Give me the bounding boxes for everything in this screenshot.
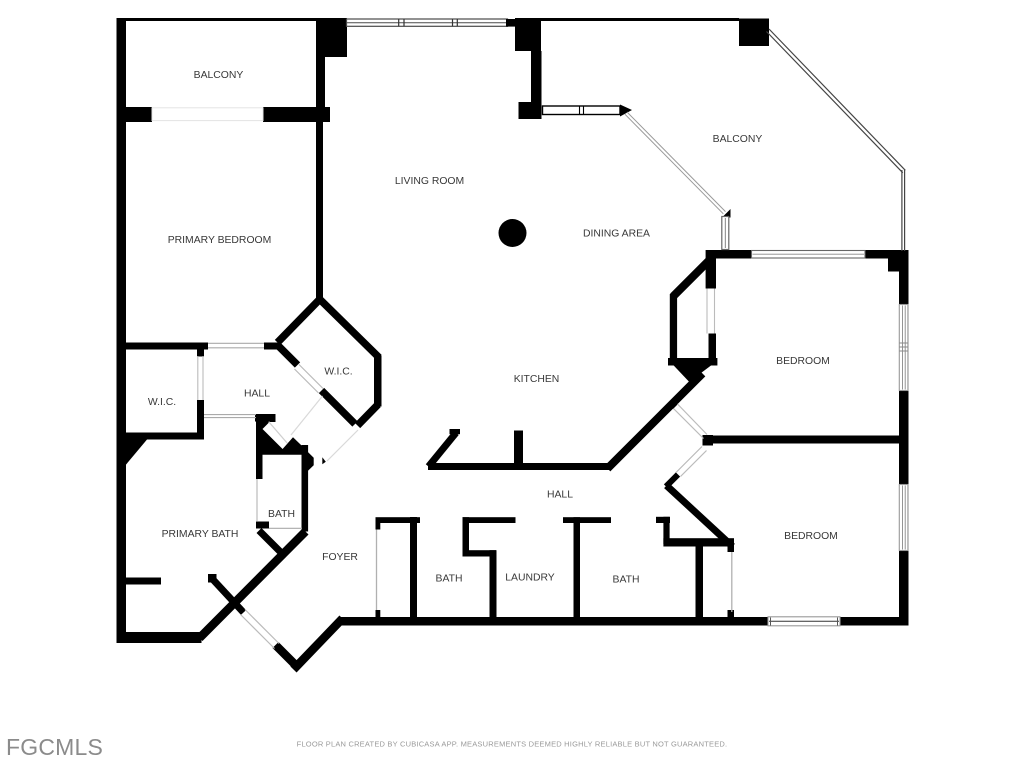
svg-text:LIVING ROOM: LIVING ROOM — [395, 176, 464, 187]
svg-text:W.I.C.: W.I.C. — [324, 367, 352, 378]
svg-text:BATH: BATH — [613, 575, 640, 586]
svg-text:BALCONY: BALCONY — [713, 134, 763, 145]
svg-text:PRIMARY BEDROOM: PRIMARY BEDROOM — [168, 235, 272, 246]
svg-text:FOYER: FOYER — [322, 552, 358, 563]
svg-text:BALCONY: BALCONY — [194, 70, 244, 81]
svg-text:W.I.C.: W.I.C. — [148, 397, 176, 408]
svg-text:BEDROOM: BEDROOM — [784, 531, 838, 542]
svg-text:BEDROOM: BEDROOM — [776, 356, 830, 367]
svg-text:DINING AREA: DINING AREA — [583, 229, 650, 240]
svg-text:LAUNDRY: LAUNDRY — [505, 573, 555, 584]
svg-text:PRIMARY BATH: PRIMARY BATH — [162, 529, 239, 540]
svg-text:HALL: HALL — [244, 389, 270, 400]
svg-text:FGCMLS: FGCMLS — [6, 734, 103, 760]
svg-text:HALL: HALL — [547, 490, 573, 501]
svg-text:FLOOR PLAN CREATED BY CUBICASA: FLOOR PLAN CREATED BY CUBICASA APP. MEAS… — [297, 740, 728, 749]
svg-text:KITCHEN: KITCHEN — [514, 374, 560, 385]
svg-text:BATH: BATH — [436, 574, 463, 585]
svg-text:BATH: BATH — [268, 509, 295, 520]
